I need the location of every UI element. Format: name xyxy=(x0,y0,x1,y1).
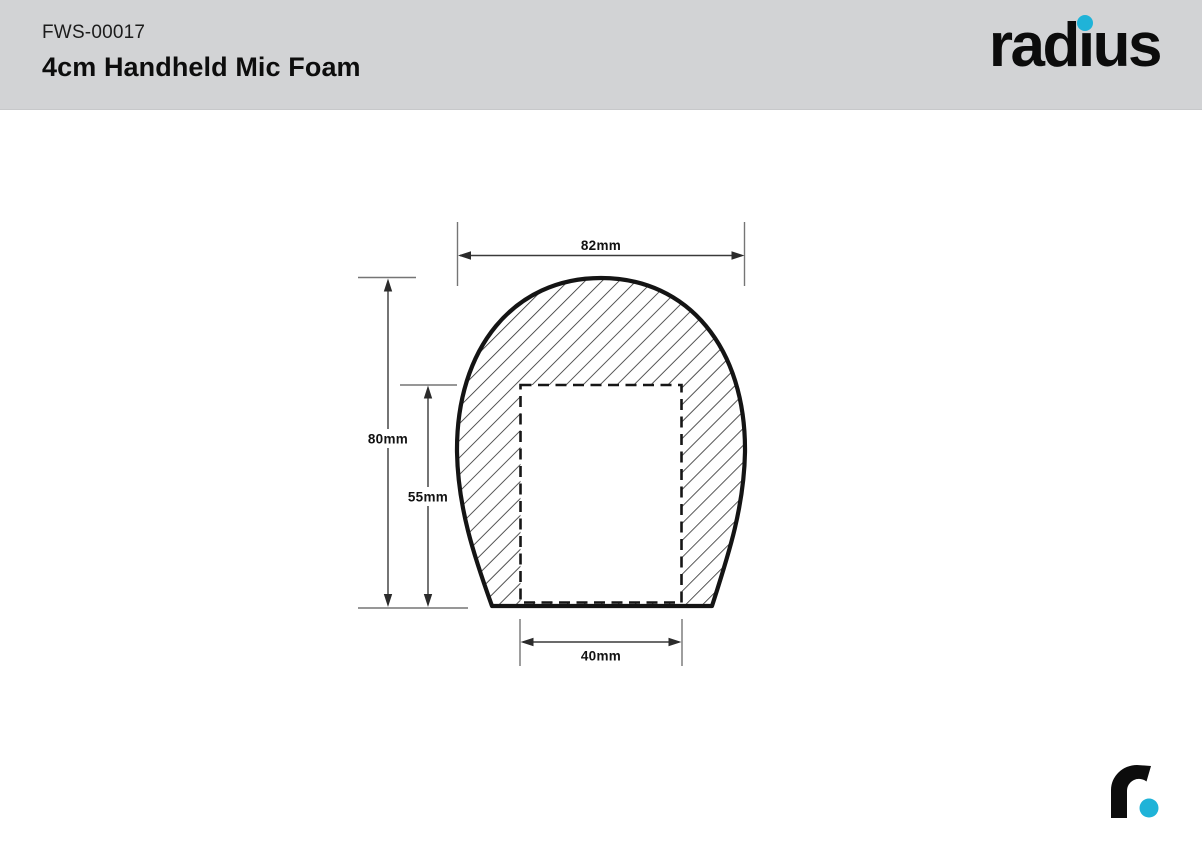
product-code: FWS-00017 xyxy=(42,21,361,45)
brand-logo-text-left: rad xyxy=(989,11,1078,80)
brand-logo-i: ı xyxy=(1078,13,1093,79)
dimension-drawing: 82mm 80mm 55mm 40mm xyxy=(0,110,1202,850)
cavity-rect xyxy=(521,385,682,603)
page-title: 4cm Handheld Mic Foam xyxy=(42,52,361,83)
dimension-label-cavity-width: 40mm xyxy=(581,649,621,664)
radius-mark-icon xyxy=(1080,740,1202,850)
header-text-block: FWS-00017 4cm Handheld Mic Foam xyxy=(42,21,361,83)
dimension-label-cavity-depth: 55mm xyxy=(408,490,448,505)
header-band: FWS-00017 4cm Handheld Mic Foam radıus xyxy=(0,0,1202,110)
radius-mark-dot xyxy=(1140,799,1159,818)
brand-logo-text-right: us xyxy=(1093,11,1160,80)
logo-dot-icon xyxy=(1077,15,1093,31)
dimension-label-outer-width: 82mm xyxy=(581,238,621,253)
brand-logo: radıus xyxy=(989,13,1160,79)
dimension-label-outer-height: 80mm xyxy=(368,432,408,447)
